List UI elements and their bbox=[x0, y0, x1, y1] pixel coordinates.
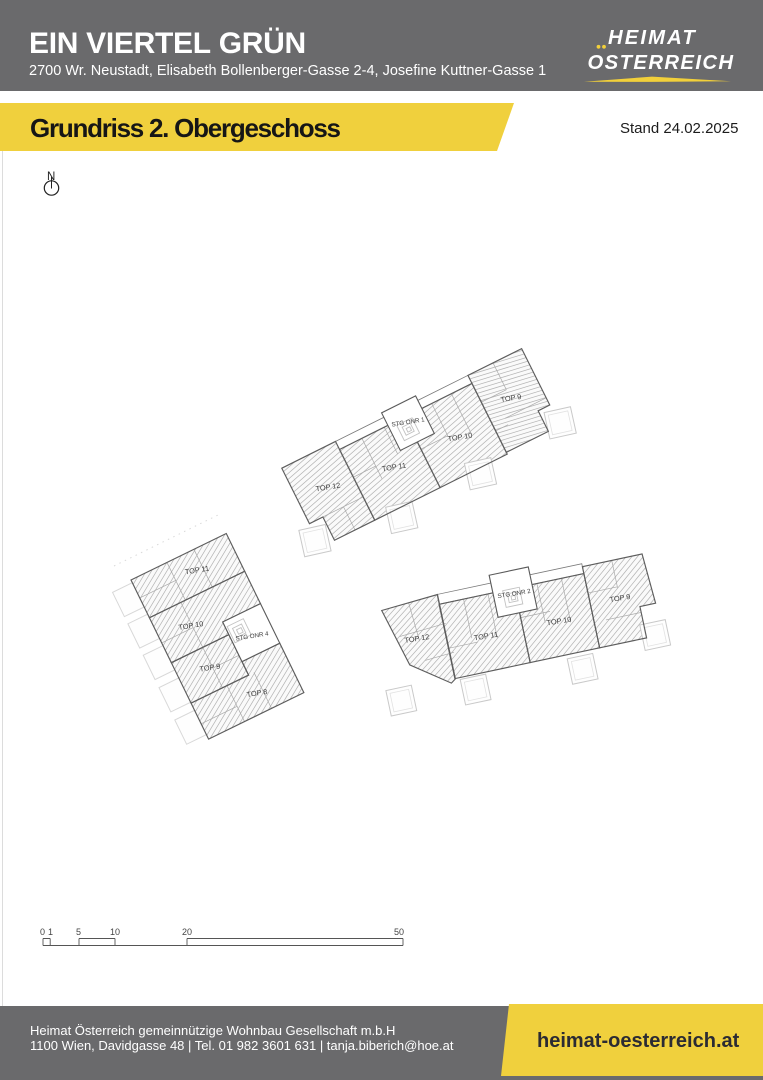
svg-text:10: 10 bbox=[110, 927, 120, 937]
svg-text:20: 20 bbox=[182, 927, 192, 937]
svg-text:0: 0 bbox=[40, 927, 45, 937]
svg-text:50: 50 bbox=[394, 927, 404, 937]
svg-text:1: 1 bbox=[48, 927, 53, 937]
svg-text:5: 5 bbox=[76, 927, 81, 937]
